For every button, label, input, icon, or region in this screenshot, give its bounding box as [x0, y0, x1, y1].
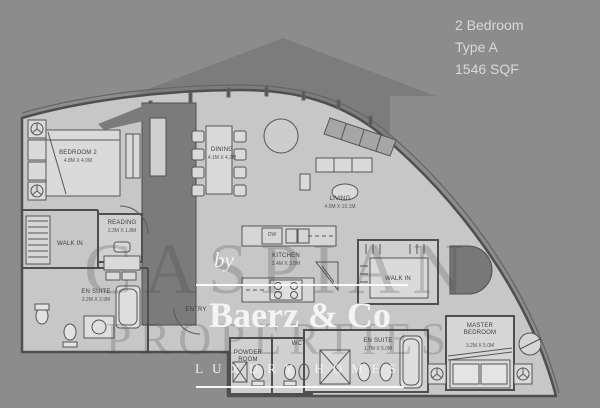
unit-info: 2 Bedroom Type A 1546 SQF — [455, 14, 523, 80]
room-label-bedroom2: BEDROOM 2 — [59, 150, 97, 157]
ceiling-fan-icon — [28, 120, 46, 138]
nightstand-icon — [28, 140, 46, 180]
room-label-reading: READING — [108, 220, 137, 227]
armchair-icon — [519, 333, 541, 355]
logo-by-text: by — [214, 248, 234, 273]
unit-model-line: Type A — [455, 36, 523, 58]
room-label-dining: DINING — [211, 147, 233, 154]
toilet-icon — [35, 304, 49, 324]
room-dims-living: 4.0M X 10.1M — [324, 205, 355, 211]
logo-divider-bottom — [196, 386, 404, 388]
wardrobe-icon — [126, 134, 140, 178]
floorplan-page: BEDROOM 2 4.8M X 4.0M READING 2.3M X 1.8… — [0, 0, 600, 408]
ceiling-fan-icon — [428, 364, 446, 384]
logo-divider-top — [196, 284, 408, 286]
logo-brand-text: Baerz & Co — [188, 294, 412, 336]
ceiling-fan-icon — [28, 182, 46, 200]
room-dims-bedroom2: 4.8M X 4.0M — [64, 159, 92, 165]
unit-area-line: 1546 SQF — [455, 58, 523, 80]
rug-icon — [264, 119, 298, 153]
room-label-living: LIVING — [330, 196, 351, 203]
unit-type-line: 2 Bedroom — [455, 14, 523, 36]
room-dims-dining: 4.1M X 4.2M — [208, 156, 236, 162]
hanger-rail-icon — [26, 216, 50, 264]
logo-tagline-text: LUXURY HOMES — [188, 361, 412, 377]
ceiling-fan-icon — [514, 364, 532, 384]
